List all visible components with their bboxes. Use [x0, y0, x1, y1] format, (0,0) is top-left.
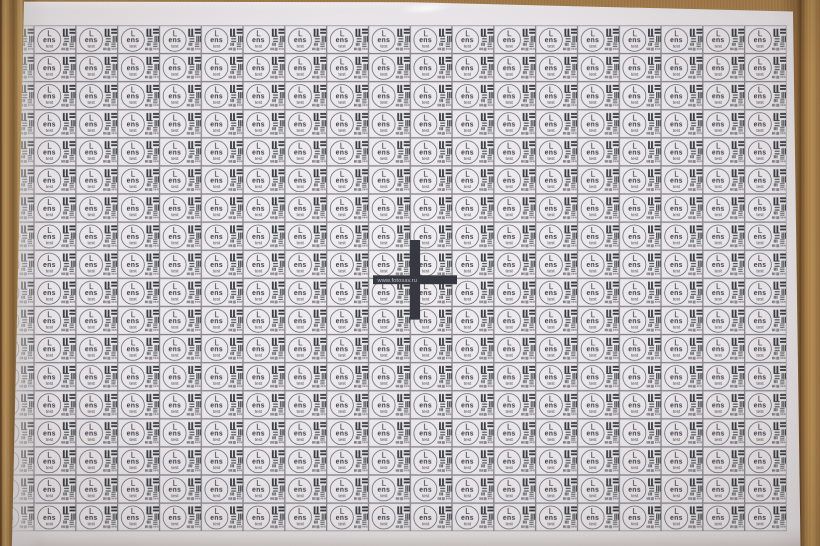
svg-text:www.fotosav.ru: www.fotosav.ru [377, 278, 418, 284]
